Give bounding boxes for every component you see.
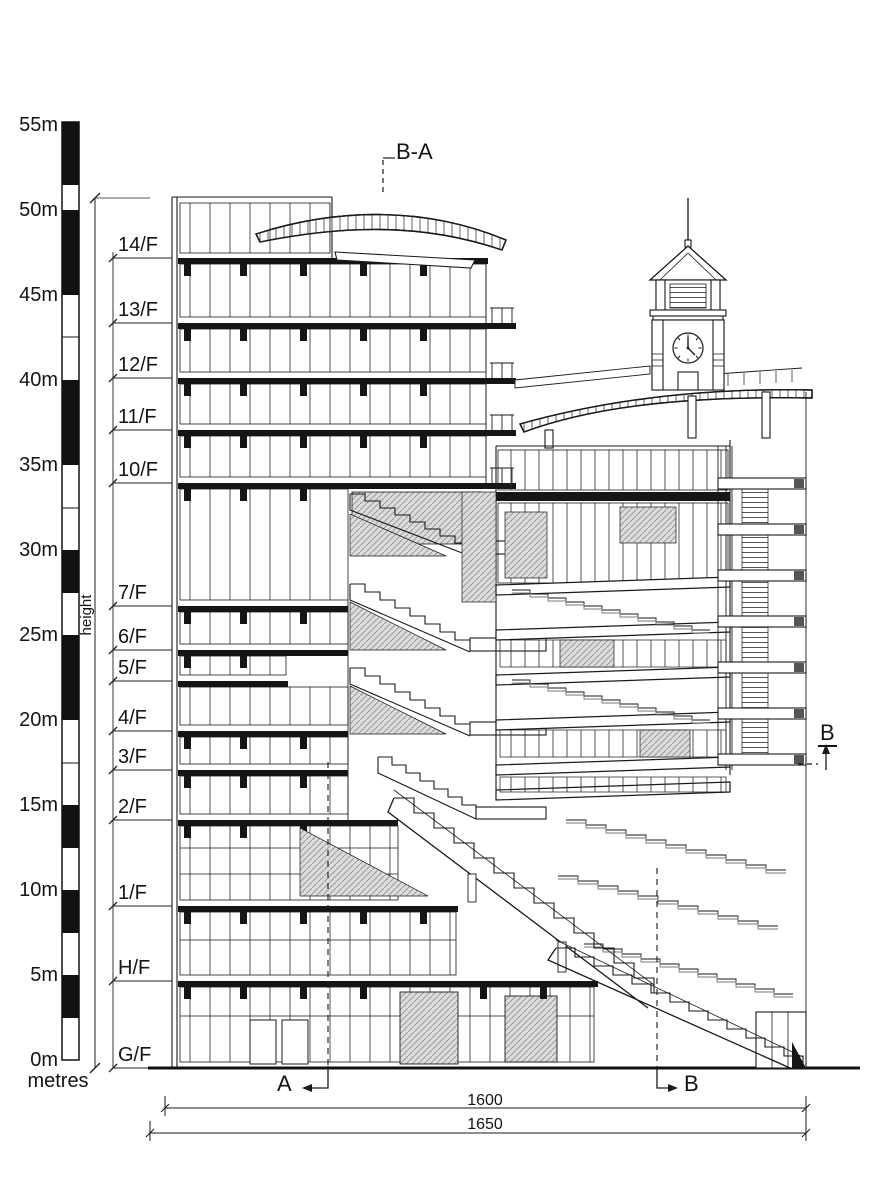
floor-label: 2/F [118, 796, 174, 818]
floor-label: 5/F [118, 657, 174, 679]
floor-label: 14/F [118, 234, 174, 256]
scale-tick-label: 15m [8, 794, 58, 816]
scale-tick-label: 20m [8, 709, 58, 731]
scale-tick-label: 5m [8, 964, 58, 986]
floor-label: 13/F [118, 299, 174, 321]
floor-label: 12/F [118, 354, 174, 376]
section-marker-b-label: B [684, 1073, 699, 1095]
scale-tick-label: 35m [8, 454, 58, 476]
scale-tick-label: 40m [8, 369, 58, 391]
floor-label: 11/F [118, 406, 174, 428]
floor-label: H/F [118, 957, 174, 979]
right-balcony-stack [718, 392, 806, 1068]
scale-unit-label: metres [6, 1070, 110, 1092]
terraced-seating [558, 820, 793, 997]
floor-label: 1/F [118, 882, 174, 904]
architectural-section-canvas: 55m 50m 45m 40m 35m 30m 25m 20m 15m 10m … [0, 0, 896, 1200]
scale-tick-label: 10m [8, 879, 58, 901]
floor-label: 7/F [118, 582, 174, 604]
clock-tower [650, 198, 726, 390]
floor-label: 4/F [118, 707, 174, 729]
scale-tick-label: 50m [8, 199, 58, 221]
dimension-upper-value: 1600 [405, 1090, 565, 1112]
section-marker-a-label: A [277, 1073, 292, 1095]
dimension-lower-value: 1650 [405, 1114, 565, 1136]
scale-tick-label: 30m [8, 539, 58, 561]
floor-label: 10/F [118, 459, 174, 481]
scale-tick-label: 25m [8, 624, 58, 646]
section-line-b [657, 868, 678, 1092]
scale-tick-label: 0m [8, 1049, 58, 1071]
section-marker-b-right-label: B [818, 722, 837, 747]
floor-label: G/F [118, 1044, 174, 1066]
section-marker-ba-label: B-A [396, 141, 433, 163]
section-line-ba-top [383, 158, 395, 192]
height-axis-label: height [76, 595, 98, 636]
floor-label: 6/F [118, 626, 174, 648]
floor-label: 3/F [118, 746, 174, 768]
scale-tick-label: 55m [8, 114, 58, 136]
scale-bar [62, 122, 79, 1060]
clock-face [673, 333, 703, 363]
scale-tick-label: 45m [8, 284, 58, 306]
